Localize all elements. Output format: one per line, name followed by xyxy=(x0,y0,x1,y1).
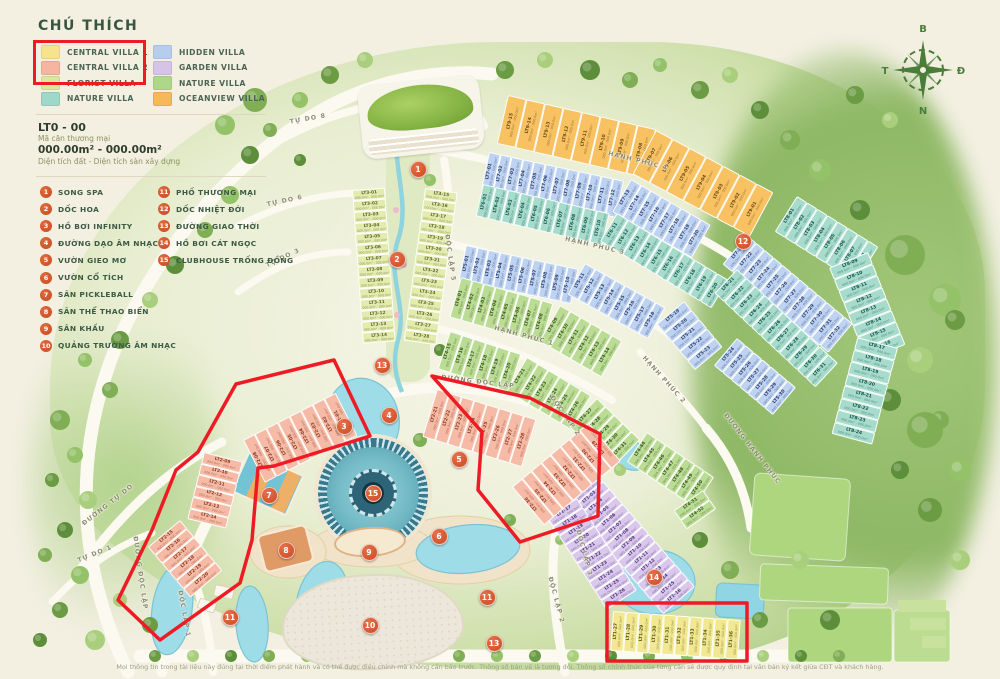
amenity-marker-13[interactable]: 13 xyxy=(374,357,391,374)
tree-highlight xyxy=(493,652,498,657)
amenity-number-badge: 2 xyxy=(40,203,52,215)
amenity-number-badge: 13 xyxy=(158,220,170,232)
tree-highlight xyxy=(890,240,908,258)
amenity-marker-14[interactable]: 14 xyxy=(646,569,663,586)
lot-label: LT3-14000.0m² - 000.0m² xyxy=(364,332,394,343)
tree-highlight xyxy=(912,417,928,433)
amenity-label: CLUBHOUSE TRỐNG ĐỒNG xyxy=(176,256,293,265)
amenity-item-6: 6VƯỜN CỔ TÍCH xyxy=(40,272,124,284)
tree-highlight xyxy=(359,54,366,61)
spa-green-roof xyxy=(365,80,475,135)
lot-area-subtext: 000.0m² - 000.0m² xyxy=(364,337,394,343)
amenity-number-badge: 6 xyxy=(40,272,52,284)
tree-highlight xyxy=(227,652,232,657)
tree-highlight xyxy=(426,176,431,181)
tree-highlight xyxy=(812,162,822,172)
lot-label: LT1-29000.0m² - 000.0m² xyxy=(638,618,649,649)
amenity-marker-8[interactable]: 8 xyxy=(278,542,295,559)
divider xyxy=(36,114,266,115)
amenity-number-badge: 8 xyxy=(40,306,52,318)
lot-label: LT9-14000.0m² - 000.0m² xyxy=(522,110,538,142)
tree-highlight xyxy=(693,83,701,91)
tree-highlight xyxy=(793,553,801,561)
lot-label: LT1-27000.0m² - 000.0m² xyxy=(612,616,623,647)
amenity-marker-12[interactable]: 12 xyxy=(735,233,752,250)
tree-highlight xyxy=(189,652,194,657)
tree-highlight xyxy=(59,524,66,531)
legend-item-nature-villa: NATURE VILLA xyxy=(153,76,246,90)
amenity-item-15: 15CLUBHOUSE TRỐNG ĐỒNG xyxy=(158,254,293,266)
lot-area-subtext: 000.0m² - 000.0m² xyxy=(630,617,636,648)
tree-highlight xyxy=(759,652,764,657)
legend-swatch xyxy=(41,92,60,106)
amenity-label: HỒ BƠI CÁT NGỌC xyxy=(176,239,257,248)
legend-swatch xyxy=(153,76,172,90)
amenity-number-badge: 10 xyxy=(40,340,52,352)
amenity-number-badge: 1 xyxy=(40,186,52,198)
tree-highlight xyxy=(607,652,612,657)
tree-highlight xyxy=(265,125,271,131)
tree-highlight xyxy=(948,313,957,322)
amenity-number-badge: 4 xyxy=(40,237,52,249)
tree-highlight xyxy=(624,74,631,81)
amenity-label: HỒ BƠI INFINITY xyxy=(58,222,133,231)
tree-highlight xyxy=(40,550,46,556)
compass-icon: B Đ N T xyxy=(878,18,968,118)
amenity-marker-11[interactable]: 11 xyxy=(222,609,239,626)
legend-label: OCEANVIEW VILLA xyxy=(179,94,265,103)
legend-item-garden-villa: GARDEN VILLA xyxy=(153,61,248,75)
amenity-item-5: 5VƯỜN GIEO MƠ xyxy=(40,254,126,266)
amenity-item-12: 12DỐC NHIỆT ĐỚI xyxy=(158,203,245,215)
lot-label: LT9-15000.0m² - 000.0m² xyxy=(504,105,520,137)
tree-highlight xyxy=(53,413,62,422)
tree-highlight xyxy=(47,475,53,481)
tree-highlight xyxy=(616,466,621,471)
legend-title: CHÚ THÍCH xyxy=(38,18,138,34)
legend-label: NATURE VILLA xyxy=(179,79,246,88)
tree-highlight xyxy=(88,633,97,642)
compass-east: Đ xyxy=(957,66,965,77)
legend-label: GARDEN VILLA xyxy=(179,63,248,72)
amenity-item-11: 11PHỐ THƯƠNG MẠI xyxy=(158,186,257,198)
amenity-item-3: 3HỒ BƠI INFINITY xyxy=(40,220,133,232)
lot-label: LT1-31000.0m² - 000.0m² xyxy=(663,619,674,650)
tree-highlight xyxy=(933,288,947,302)
legend-item-nature-villa: NATURE VILLA xyxy=(41,92,134,106)
amenity-label: ĐƯỜNG DẠO ÂM NHẠC xyxy=(58,239,158,248)
amenity-marker-6[interactable]: 6 xyxy=(431,528,448,545)
amenity-marker-11[interactable]: 11 xyxy=(479,589,496,606)
lot-label: LT1-33000.0m² - 000.0m² xyxy=(689,621,700,652)
tree-highlight xyxy=(893,463,901,471)
tree-highlight xyxy=(436,346,441,351)
tree-highlight xyxy=(694,534,701,541)
amenity-label: SÂN THỂ THAO BIỂN xyxy=(58,307,149,316)
legend-item-oceanview-villa: OCEANVIEW VILLA xyxy=(153,92,265,106)
lot-label: LT1-28000.0m² - 000.0m² xyxy=(625,617,636,648)
lot-LT3-14[interactable]: LT3-14000.0m² - 000.0m² xyxy=(362,330,396,343)
amenity-marker-9[interactable]: 9 xyxy=(361,544,378,561)
tree-highlight xyxy=(723,563,731,571)
amenity-item-10: 10QUẢNG TRƯỜNG ÂM NHẠC xyxy=(40,340,176,352)
legend-label: NATURE VILLA xyxy=(67,94,134,103)
amenity-marker-13[interactable]: 13 xyxy=(486,635,503,652)
tree-highlight xyxy=(531,652,536,657)
unit-code: LT0 - 00 xyxy=(38,121,86,134)
amenity-number-badge: 9 xyxy=(40,323,52,335)
tree-highlight xyxy=(455,652,460,657)
tree-highlight xyxy=(144,619,151,626)
amenity-item-13: 13ĐƯỜNG GIAO THỜI xyxy=(158,220,259,232)
tree-highlight xyxy=(69,449,76,456)
amenity-item-7: 7SÂN PICKLEBALL xyxy=(40,289,133,301)
amenity-number-badge: 14 xyxy=(158,237,170,249)
lot-area-subtext: 000.0m² - 000.0m² xyxy=(733,624,739,655)
tree-highlight xyxy=(952,462,962,472)
compass-west: T xyxy=(882,66,889,77)
legend-swatch xyxy=(153,45,172,59)
amenity-number-badge: 7 xyxy=(40,289,52,301)
tree-highlight xyxy=(498,63,506,71)
amenity-marker-4[interactable]: 4 xyxy=(381,407,398,424)
lot-label: LT1-34000.0m² - 000.0m² xyxy=(702,622,713,653)
lot-label: LT9-13000.0m² - 000.0m² xyxy=(541,114,557,146)
amenity-label: QUẢNG TRƯỜNG ÂM NHẠC xyxy=(58,341,176,350)
tree-highlight xyxy=(753,103,761,111)
amenity-label: VƯỜN CỔ TÍCH xyxy=(58,273,124,282)
lot-label: LT1-32000.0m² - 000.0m² xyxy=(676,620,687,651)
amenity-number-badge: 15 xyxy=(158,254,170,266)
tree-highlight xyxy=(754,614,761,621)
tree-highlight xyxy=(218,118,227,127)
amenity-marker-15[interactable]: 15 xyxy=(365,485,382,502)
tree-highlight xyxy=(835,652,840,657)
tree-highlight xyxy=(265,652,270,657)
unit-area-desc: Diện tích đất - Diện tích sàn xây dựng xyxy=(38,157,180,166)
amenity-marker-5[interactable]: 5 xyxy=(451,451,468,468)
compass-north: B xyxy=(919,24,927,35)
amenity-marker-1[interactable]: 1 xyxy=(410,161,427,178)
tree-highlight xyxy=(783,133,792,142)
tree-highlight xyxy=(81,493,89,501)
unit-area: 000.00m² - 000.00m² xyxy=(38,144,162,156)
tree-highlight xyxy=(655,60,661,66)
tree-highlight xyxy=(80,355,86,361)
amenity-label: VƯỜN GIEO MƠ xyxy=(58,256,126,265)
tree-highlight xyxy=(151,652,156,657)
tree-highlight xyxy=(144,294,151,301)
lot-label: LT9-11000.0m² - 000.0m² xyxy=(578,123,594,155)
amenity-number-badge: 3 xyxy=(40,220,52,232)
tree-highlight xyxy=(104,384,111,391)
amenity-marker-7[interactable]: 7 xyxy=(261,487,278,504)
amenity-number-badge: 11 xyxy=(158,186,170,198)
tree-highlight xyxy=(953,553,962,562)
spa-building xyxy=(356,74,485,160)
tree-highlight xyxy=(506,516,511,521)
amenity-item-1: 1SONG SPA xyxy=(40,186,103,198)
tree-highlight xyxy=(296,156,301,161)
tree-highlight xyxy=(539,54,546,61)
lot-area-subtext: 000.0m² - 000.0m² xyxy=(694,621,700,652)
tree-highlight xyxy=(115,595,121,601)
amenity-marker-3[interactable]: 3 xyxy=(336,418,353,435)
amenity-number-badge: 5 xyxy=(40,254,52,266)
tree-highlight xyxy=(73,568,81,576)
amenity-label: DỐC HOA xyxy=(58,205,99,214)
amenity-marker-2[interactable]: 2 xyxy=(389,251,406,268)
unit-code-desc: Mã căn thương mại xyxy=(38,134,110,143)
tree-highlight xyxy=(35,635,41,641)
amenity-label: PHỐ THƯƠNG MẠI xyxy=(176,188,257,197)
amenity-item-4: 4ĐƯỜNG DẠO ÂM NHẠC xyxy=(40,237,158,249)
tree-highlight xyxy=(848,88,856,96)
amenity-number-badge: 12 xyxy=(158,203,170,215)
tree-highlight xyxy=(823,613,832,622)
legend-label: HIDDEN VILLA xyxy=(179,48,245,57)
amenity-item-8: 8SÂN THỂ THAO BIỂN xyxy=(40,306,149,318)
amenity-label: SÂN KHẤU xyxy=(58,324,105,333)
tree-highlight xyxy=(853,203,862,212)
amenity-item-14: 14HỒ BƠI CÁT NGỌC xyxy=(158,237,257,249)
amenity-item-9: 9SÂN KHẤU xyxy=(40,323,105,335)
lot-label: LT9-12000.0m² - 000.0m² xyxy=(559,118,575,150)
tree-highlight xyxy=(910,350,922,362)
amenity-item-2: 2DỐC HOA xyxy=(40,203,99,215)
amenity-label: SÂN PICKLEBALL xyxy=(58,290,133,299)
footer-disclaimer: Mọi thông tin trong tài liệu này đúng tạ… xyxy=(0,663,1000,671)
lot-label: LT1-36000.0m² - 000.0m² xyxy=(727,624,738,655)
terraced-fields xyxy=(749,473,950,662)
legend-item-hidden-villa: HIDDEN VILLA xyxy=(153,45,245,59)
divider xyxy=(36,176,266,177)
legend-swatch xyxy=(153,61,172,75)
amenity-label: DỐC NHIỆT ĐỚI xyxy=(176,205,245,214)
masterplan-page: { "legend": { "title": "CHÚ THÍCH", "ite… xyxy=(0,0,1000,679)
tree-highlight xyxy=(921,501,932,512)
amenity-label: ĐƯỜNG GIAO THỜI xyxy=(176,222,259,231)
tree-highlight xyxy=(583,63,592,72)
tree-highlight xyxy=(323,68,331,76)
tree-highlight xyxy=(415,435,421,441)
tree-highlight xyxy=(243,148,251,156)
tree-highlight xyxy=(54,604,61,611)
amenity-label: SONG SPA xyxy=(58,188,103,197)
legend-swatch xyxy=(153,92,172,106)
amenity-marker-10[interactable]: 10 xyxy=(362,617,379,634)
tree-highlight xyxy=(569,652,574,657)
lot-label: LT1-30000.0m² - 000.0m² xyxy=(651,618,662,649)
compass-south: N xyxy=(919,106,927,117)
tree-highlight xyxy=(294,94,301,101)
tree-highlight xyxy=(797,652,802,657)
lot-label: LT1-35000.0m² - 000.0m² xyxy=(714,623,725,654)
tree-highlight xyxy=(724,69,731,76)
legend-highlight-box xyxy=(33,40,146,85)
